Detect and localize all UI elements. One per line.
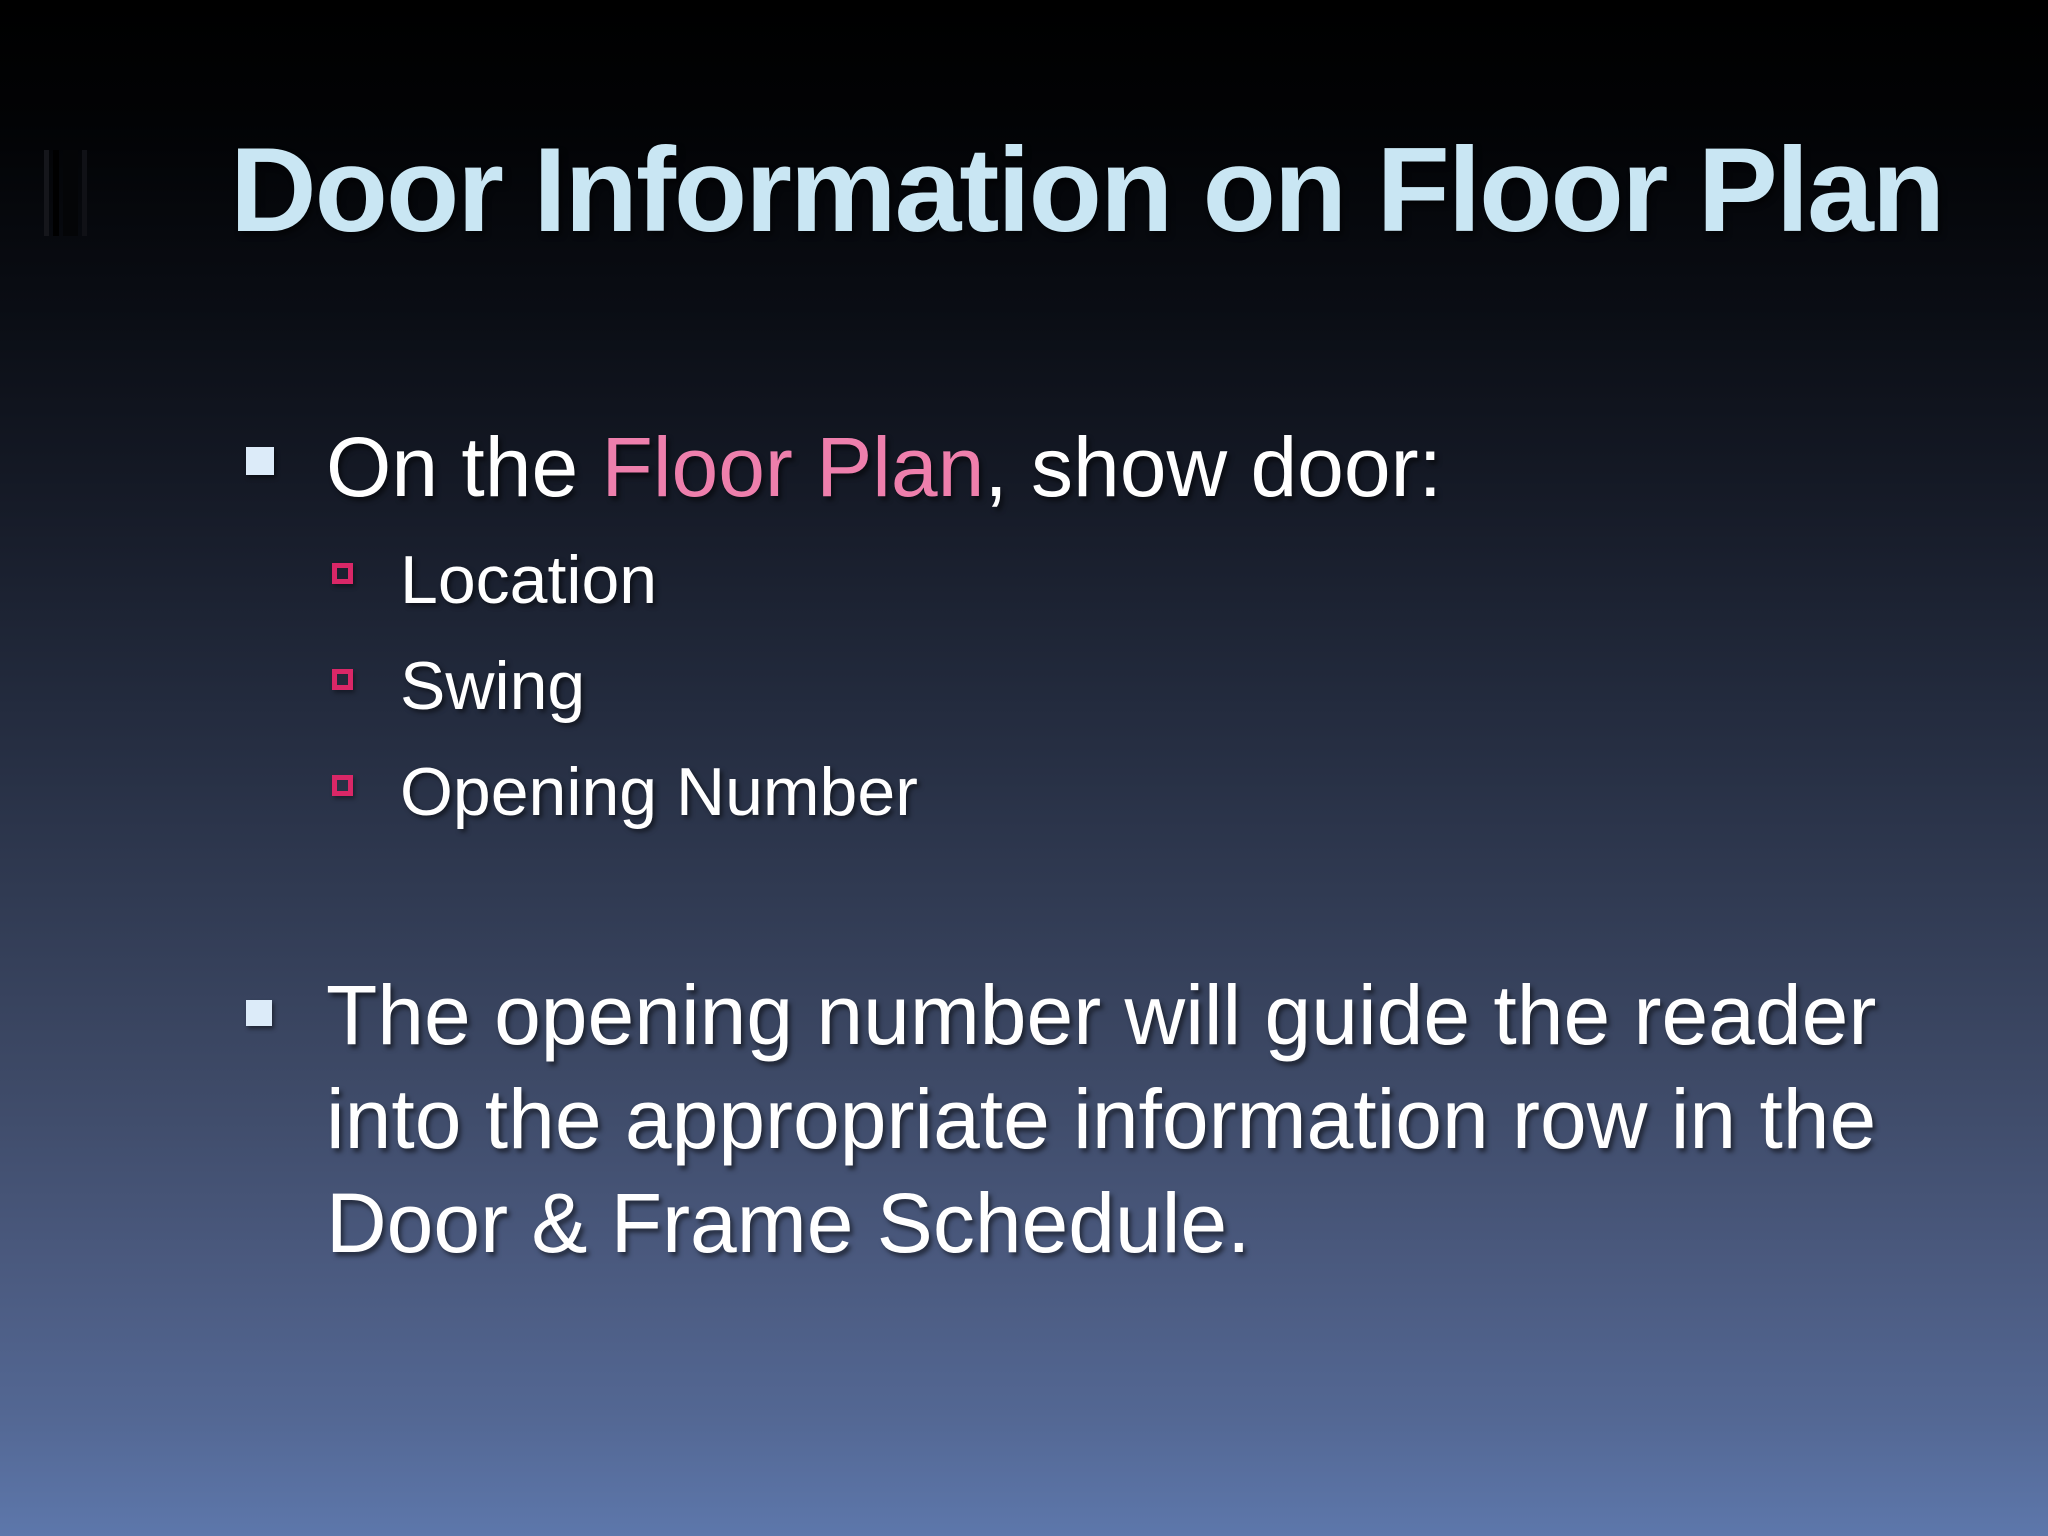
filled-square-bullet-icon: [246, 1000, 272, 1026]
sub-bullet-label: Opening Number: [400, 753, 918, 832]
hollow-square-bullet-icon: [332, 563, 353, 584]
decorative-bar: [53, 150, 59, 236]
bullet1-suffix: , show door:: [984, 420, 1442, 514]
sub-bullet-label: Swing: [400, 647, 585, 726]
sub-bullet-list: Location Swing Opening Number: [332, 541, 918, 859]
decorative-bar: [82, 150, 87, 236]
hollow-square-bullet-icon: [332, 775, 353, 796]
floor-plan-highlight: Floor Plan: [602, 420, 985, 514]
decorative-bars-icon: [44, 150, 87, 236]
sub-bullet-item-location: Location: [332, 541, 918, 620]
sub-bullet-item-swing: Swing: [332, 647, 918, 726]
bullet2-line-3: Door & Frame Schedule.: [326, 1171, 1876, 1275]
sub-bullet-item-opening-number: Opening Number: [332, 753, 918, 832]
bullet2-line-1: The opening number will guide the reader: [326, 963, 1876, 1067]
filled-square-bullet-icon: [246, 447, 274, 475]
decorative-bar: [44, 150, 49, 236]
slide-title: Door Information on Floor Plan: [230, 127, 1943, 254]
bullet1-prefix: On the: [326, 420, 602, 514]
decorative-bar: [63, 150, 78, 236]
hollow-square-bullet-icon: [332, 669, 353, 690]
bullet1-text: On the Floor Plan, show door:: [326, 419, 1442, 516]
bullet2-line-2: into the appropriate information row in …: [326, 1067, 1876, 1171]
bullet-item-floor-plan: On the Floor Plan, show door:: [246, 419, 1442, 516]
bullet-item-opening-number-paragraph: The opening number will guide the reader…: [246, 963, 1876, 1275]
slide-canvas: Door Information on Floor Plan On the Fl…: [0, 0, 2048, 1536]
sub-bullet-label: Location: [400, 541, 657, 620]
bullet2-text: The opening number will guide the reader…: [326, 963, 1876, 1275]
